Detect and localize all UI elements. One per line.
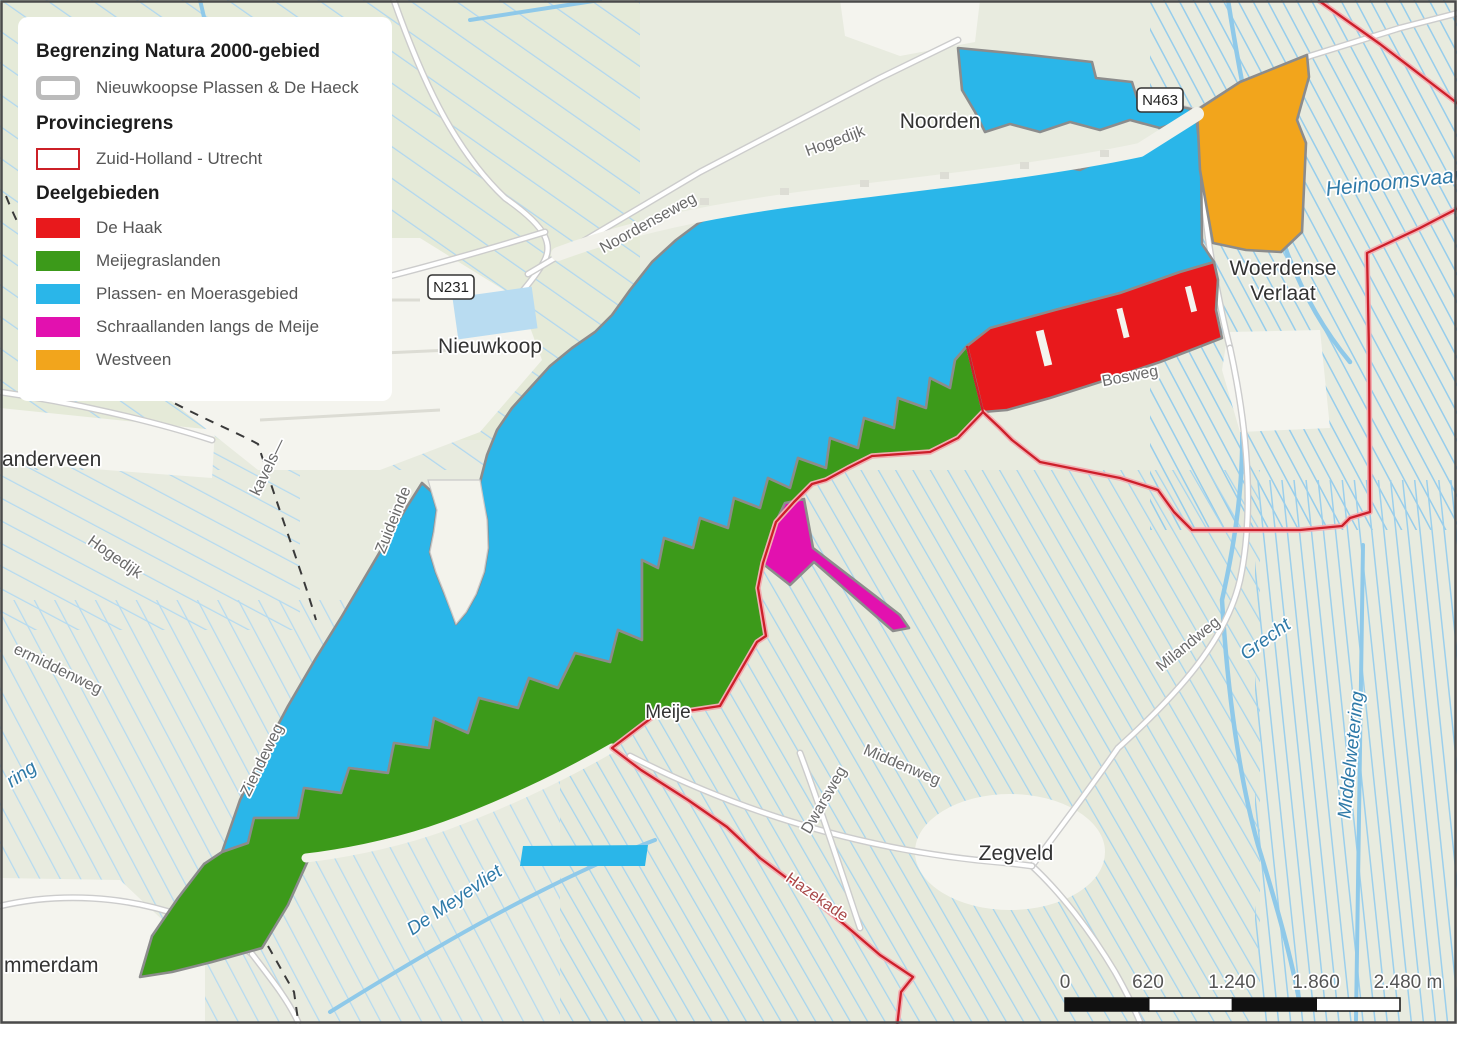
n463-shield: N463 bbox=[1137, 88, 1183, 112]
plassen-swatch bbox=[36, 284, 80, 304]
legend-item-westveen: Westveen bbox=[36, 350, 374, 370]
legend-item-schraallanden-label: Schraallanden langs de Meije bbox=[96, 317, 319, 337]
legend: Begrenzing Natura 2000-gebied Nieuwkoops… bbox=[18, 17, 392, 401]
scale-tick-1240: 1.240 bbox=[1208, 972, 1256, 993]
town-label-meije: Meije bbox=[645, 702, 690, 723]
legend-item-meijegraslanden-label: Meijegraslanden bbox=[96, 251, 221, 271]
legend-item-plassen-label: Plassen- en Moerasgebied bbox=[96, 284, 298, 304]
natura-boundary-swatch bbox=[36, 76, 80, 100]
westveen-swatch bbox=[36, 350, 80, 370]
town-label-anderveen: anderveen bbox=[2, 448, 101, 471]
legend-item-province: Zuid-Holland - Utrecht bbox=[36, 148, 374, 170]
town-label-verlaat: Verlaat bbox=[1250, 282, 1316, 305]
n231-shield-label: N231 bbox=[433, 279, 469, 296]
scale-tick-620: 620 bbox=[1132, 972, 1164, 993]
legend-item-de-haak-label: De Haak bbox=[96, 218, 162, 238]
town-label-woerdense: Woerdense bbox=[1229, 257, 1336, 280]
legend-title-province: Provinciegrens bbox=[36, 113, 374, 135]
meijegraslanden-swatch bbox=[36, 251, 80, 271]
n231-shield: N231 bbox=[428, 275, 474, 299]
town-label-nieuwkoop: Nieuwkoop bbox=[438, 335, 542, 358]
schraallanden-swatch bbox=[36, 317, 80, 337]
legend-item-plassen: Plassen- en Moerasgebied bbox=[36, 284, 374, 304]
legend-item-province-label: Zuid-Holland - Utrecht bbox=[96, 149, 262, 169]
scale-tick-1860: 1.860 bbox=[1292, 972, 1340, 993]
legend-item-de-haak: De Haak bbox=[36, 218, 374, 238]
legend-title-deelgebieden: Deelgebieden bbox=[36, 183, 374, 205]
legend-item-schraallanden: Schraallanden langs de Meije bbox=[36, 317, 374, 337]
legend-item-natura: Nieuwkoopse Plassen & De Haeck bbox=[36, 76, 374, 100]
scale-tick-2480: 2.480 m bbox=[1374, 972, 1443, 993]
legend-item-natura-label: Nieuwkoopse Plassen & De Haeck bbox=[96, 78, 359, 98]
legend-item-westveen-label: Westveen bbox=[96, 350, 171, 370]
town-label-zwammerdam: mmerdam bbox=[4, 954, 99, 977]
legend-title-natura: Begrenzing Natura 2000-gebied bbox=[36, 41, 374, 63]
town-label-zegveld: Zegveld bbox=[979, 842, 1054, 865]
province-border-swatch bbox=[36, 148, 80, 170]
region-plassen-small-patch bbox=[520, 845, 648, 866]
legend-item-meijegraslanden: Meijegraslanden bbox=[36, 251, 374, 271]
town-label-noorden: Noorden bbox=[900, 110, 981, 133]
scale-tick-0: 0 bbox=[1060, 972, 1071, 993]
de-haak-swatch bbox=[36, 218, 80, 238]
n463-shield-label: N463 bbox=[1142, 92, 1178, 109]
